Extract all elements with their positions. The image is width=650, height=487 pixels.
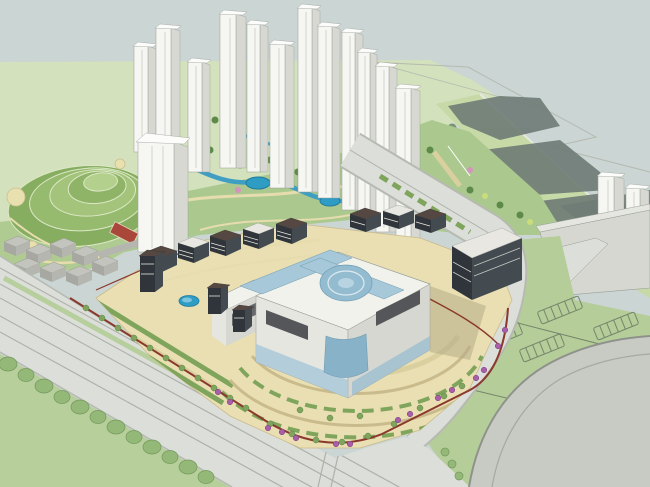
tower	[297, 4, 321, 192]
corner-pavilion	[139, 250, 165, 292]
tower	[317, 22, 341, 198]
foreground-tower	[136, 133, 190, 252]
tower	[269, 40, 295, 188]
tower	[219, 10, 247, 168]
tower	[187, 58, 211, 172]
masterplan-rendering	[0, 0, 650, 487]
sand-lawn	[7, 188, 25, 206]
sand-lawn	[115, 159, 125, 169]
glass-rotunda	[324, 334, 368, 378]
viewport	[0, 0, 650, 487]
pond	[246, 177, 270, 189]
tower	[246, 20, 269, 172]
